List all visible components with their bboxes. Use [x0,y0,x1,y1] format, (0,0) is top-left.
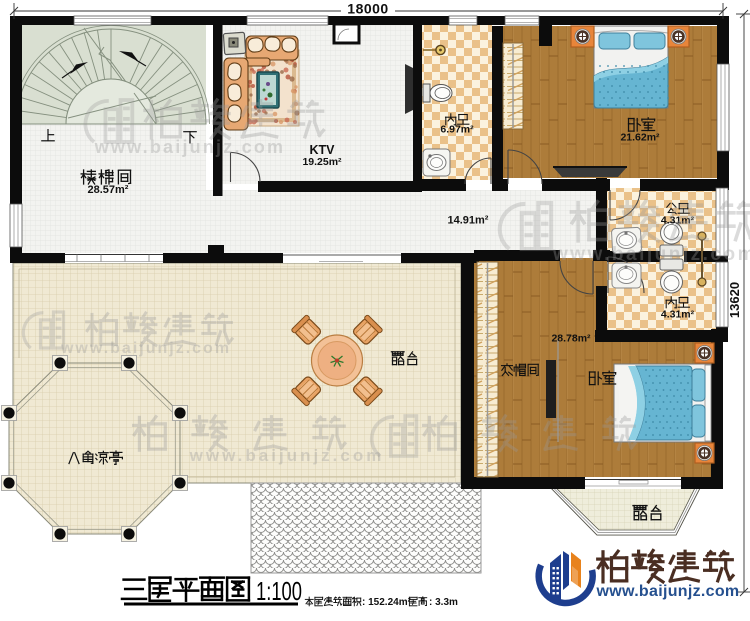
svg-text:www.baijunjz.com: www.baijunjz.com [60,340,231,357]
svg-text:13620: 13620 [727,282,742,318]
svg-text:www.baijunjz.com: www.baijunjz.com [189,446,385,465]
svg-text:1:100: 1:100 [256,576,302,606]
svg-text:14.91m²: 14.91m² [448,215,489,227]
svg-text:19.25m²: 19.25m² [302,156,342,168]
svg-text:www.baijunjz.com: www.baijunjz.com [94,137,286,157]
svg-text:4.31m²: 4.31m² [661,309,695,321]
svg-text:www.baijunjz.com: www.baijunjz.com [596,583,740,600]
svg-text:: 3.3m: : 3.3m [429,597,458,608]
svg-text:6.97m²: 6.97m² [440,124,474,136]
svg-text:28.57m²: 28.57m² [88,184,129,196]
svg-text:28.78m²: 28.78m² [551,333,591,345]
svg-text:18000: 18000 [347,1,388,17]
svg-text:: 152.24m²: : 152.24m² [362,597,412,608]
svg-text:www.baijunjz.com: www.baijunjz.com [552,244,750,265]
svg-text:KTV: KTV [310,143,336,157]
svg-text:21.62m²: 21.62m² [620,132,660,144]
